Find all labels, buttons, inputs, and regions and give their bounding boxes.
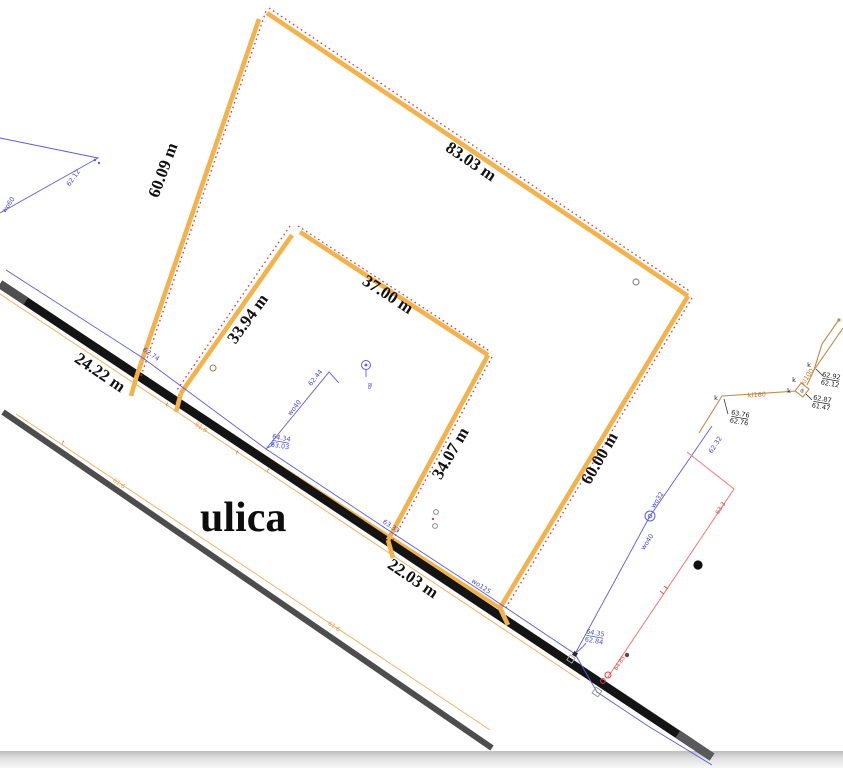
marker-k-4: k <box>807 361 811 369</box>
survey-vertex-dot-a <box>94 159 96 161</box>
survey-point-circle-s1 <box>434 510 439 515</box>
elevation-pair-64-34: 64.34 63.03 <box>270 432 291 451</box>
survey-point-red-dot <box>432 518 434 520</box>
utility-pair-63-76: 63.76 62.76 <box>729 408 750 427</box>
small-dark-dot <box>625 653 629 657</box>
pole-tag-label: 8b <box>366 383 372 389</box>
cadastral-map: 60.09 m 83.03 m 37.00 m 33.94 m 34.07 m … <box>0 0 843 768</box>
street-name-label: ulica <box>200 495 286 541</box>
marker-k-1: k <box>714 394 718 402</box>
marker-k-3: k <box>787 387 791 395</box>
page-edge-band <box>0 751 843 768</box>
elevation-pair-64-35: 64.35 62.84 <box>584 627 605 646</box>
survey-point-circle-w <box>210 365 216 371</box>
survey-point-circle-s2 <box>433 524 438 529</box>
utility-pair-62-92: 62.92 62.12 <box>820 370 841 389</box>
black-point-marker <box>693 560 702 569</box>
marker-d: d <box>800 389 804 395</box>
utility-pipe-end-dot <box>837 318 840 321</box>
map-viewport[interactable]: 60.09 m 83.03 m 37.00 m 33.94 m 34.07 m … <box>0 0 843 768</box>
utility-pole-center-dot <box>365 364 368 367</box>
pipe-label-kl160: kl160 <box>748 390 766 399</box>
marker-k-2: k <box>792 376 796 384</box>
survey-point-circle-e <box>633 279 639 285</box>
utility-pair-62-87: 62.87 61.47 <box>811 393 832 412</box>
survey-vertex-dot-b <box>98 162 100 164</box>
